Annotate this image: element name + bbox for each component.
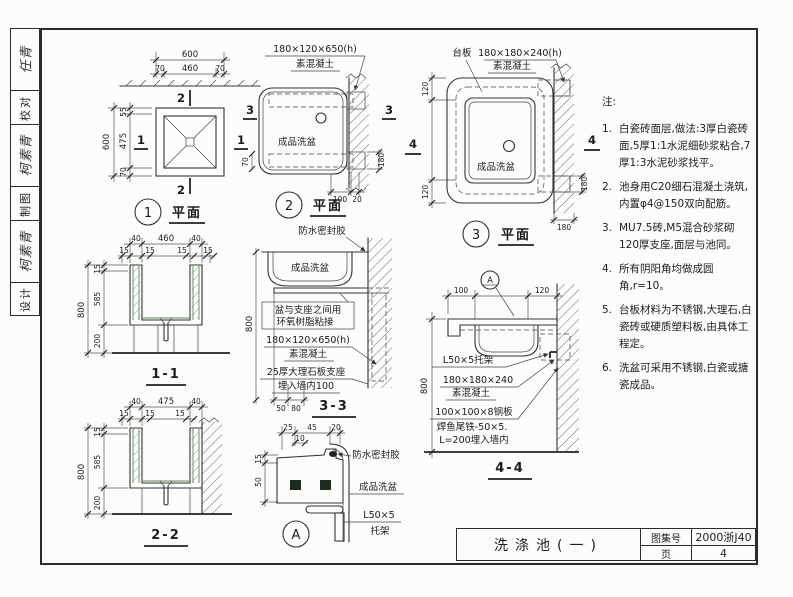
- s22-title: 2-2: [144, 528, 188, 546]
- svg-text:焊鱼尾铁-50×5.: 焊鱼尾铁-50×5.: [437, 421, 508, 433]
- svg-text:2: 2: [285, 199, 293, 214]
- s44-counter-basin: [448, 319, 570, 360]
- s44-wall: [557, 284, 579, 452]
- title-block-right: 图集号 2000浙J40 页 4: [641, 529, 755, 560]
- drawing-sheet: 任青 校对 柯素青 制图 柯素青 设计 600 70 460 70: [0, 0, 793, 597]
- note-item: 5. 台板材料为不锈钢,大理石,白瓷砖或硬质塑料板,由具体工程定。: [602, 302, 754, 353]
- plan3-labels: 台板 180×180×240(h) 素混凝土: [452, 47, 564, 92]
- plan2-section-markers: 3 3: [243, 103, 396, 119]
- svg-text:3: 3: [385, 103, 393, 117]
- s33-concrete-label: 180×120×650(h) 素混凝土: [264, 335, 376, 364]
- s22-wall: [199, 418, 222, 514]
- svg-text:600: 600: [102, 134, 112, 150]
- svg-text:2-2: 2-2: [151, 528, 181, 543]
- note-item: 4. 所有阴阳角均做成圆角,r=10。: [602, 261, 754, 295]
- svg-text:托架: 托架: [370, 525, 390, 537]
- svg-text:素混凝土: 素混凝土: [289, 348, 328, 360]
- svg-text:475: 475: [158, 397, 174, 407]
- svg-text:55: 55: [119, 107, 128, 117]
- svg-text:平面: 平面: [313, 199, 343, 214]
- svg-text:成品洗盆: 成品洗盆: [359, 481, 398, 493]
- s11-pool-section: [112, 265, 230, 353]
- svg-text:3-3: 3-3: [319, 399, 349, 414]
- s33-wall: [368, 238, 392, 388]
- svg-text:460: 460: [158, 234, 174, 244]
- svg-text:800: 800: [420, 378, 430, 394]
- svg-text:600: 600: [182, 50, 198, 60]
- svg-text:素混凝土: 素混凝土: [493, 60, 532, 72]
- svg-text:585: 585: [93, 455, 102, 470]
- svg-text:200: 200: [93, 496, 102, 511]
- page-row: 页 4: [641, 546, 755, 561]
- svg-text:70: 70: [155, 64, 165, 73]
- da-bracket: [306, 506, 344, 541]
- da-dims-left: 15 50: [254, 450, 278, 507]
- s33-marble-label: 25厚大理石板支座 埋入墙内100: [260, 366, 368, 393]
- svg-text:A: A: [292, 528, 301, 543]
- notes-panel: 注: 1. 白瓷砖面层,做法:3厚白瓷砖面,5厚1:1水泥细砂浆粘合,7厚1:3…: [602, 94, 754, 401]
- da-title: A: [283, 521, 309, 547]
- svg-text:50: 50: [276, 404, 286, 413]
- note-item: 3. MU7.5砖,M5混合砂浆砌120厚支座,面层与池同。: [602, 220, 754, 254]
- sidebar-signature-3: 柯素青: [10, 220, 40, 282]
- svg-text:70: 70: [119, 167, 128, 177]
- svg-text:L50×5: L50×5: [363, 510, 394, 521]
- atlas-label: 图集号: [641, 529, 692, 545]
- sidebar-signature-2: 柯素青: [10, 124, 40, 186]
- svg-text:1: 1: [144, 206, 152, 221]
- svg-text:70: 70: [215, 64, 225, 73]
- note-item: 2. 池身用C20细石混凝土浇筑,内置φ4@150双向配筋。: [602, 179, 754, 213]
- page-label: 页: [641, 546, 692, 561]
- svg-text:15: 15: [203, 246, 213, 255]
- svg-text:800: 800: [245, 316, 255, 332]
- svg-text:1-1: 1-1: [151, 367, 181, 382]
- detail-a-drawing: 25 45 20 10 15 50 防水密封胶: [236, 414, 426, 564]
- s33-epoxy-label: 盆与支座之间用 环氧树脂粘接: [262, 293, 354, 329]
- svg-text:4: 4: [588, 133, 596, 147]
- svg-text:40: 40: [131, 397, 141, 406]
- s44-detail-bubble: A: [481, 271, 514, 316]
- svg-text:120: 120: [421, 185, 430, 200]
- plan3-wall: [551, 64, 574, 213]
- svg-text:成品洗盆: 成品洗盆: [278, 136, 317, 148]
- section-4-4-drawing: A 100 120 L50×5托架 180×180×240: [416, 264, 601, 482]
- svg-text:800: 800: [77, 464, 87, 480]
- svg-text:素混凝土: 素混凝土: [452, 387, 491, 399]
- svg-text:2: 2: [177, 183, 185, 197]
- svg-text:100: 100: [454, 286, 469, 295]
- svg-text:15: 15: [93, 264, 102, 274]
- plan1-title: 1 平面: [135, 199, 205, 225]
- svg-text:15: 15: [93, 427, 102, 437]
- svg-text:200: 200: [93, 334, 102, 349]
- sidebar-label-proofread: 校对: [10, 90, 40, 124]
- svg-text:50: 50: [254, 477, 263, 487]
- svg-text:25: 25: [283, 423, 293, 432]
- da-counter-body: [277, 449, 343, 503]
- s11-dims-left: 800 15 585 200: [77, 260, 128, 358]
- svg-text:4-4: 4-4: [495, 461, 525, 476]
- sidebar-label-draft: 制图: [10, 186, 40, 220]
- svg-text:2: 2: [177, 91, 185, 105]
- svg-text:4: 4: [409, 137, 417, 151]
- svg-text:100×100×8钢板: 100×100×8钢板: [435, 406, 513, 418]
- svg-text:盆与支座之间用: 盆与支座之间用: [275, 304, 342, 316]
- s44-labels: L50×5托架 180×180×240 素混凝土 100×100×8钢板 焊鱼尾…: [430, 354, 558, 446]
- s33-basin: 成品洗盆: [262, 252, 368, 286]
- svg-text:180: 180: [557, 223, 572, 232]
- s33-sealant-label: 防水密封胶: [298, 225, 365, 251]
- svg-text:20: 20: [331, 423, 341, 432]
- svg-text:埋入墙内100: 埋入墙内100: [278, 380, 334, 392]
- s11-dims-top: 40 460 40 15 15 15 15: [118, 234, 217, 263]
- svg-text:15: 15: [175, 409, 185, 418]
- svg-text:15: 15: [119, 246, 129, 255]
- svg-text:15: 15: [145, 409, 155, 418]
- svg-text:475: 475: [119, 133, 129, 149]
- title-block: 洗涤池(一) 图集号 2000浙J40 页 4: [456, 528, 756, 561]
- svg-text:25厚大理石板支座: 25厚大理石板支座: [267, 366, 346, 378]
- s22-dims-left: 800 15 585 200: [77, 423, 128, 519]
- svg-text:120: 120: [535, 286, 550, 295]
- section-3-3-drawing: 防水密封胶 成品洗盆 盆与支座之间用 环氧树脂粘接 180×120×650(h)…: [248, 224, 416, 420]
- s44-dims-top: 100 120: [442, 286, 563, 319]
- plan3-title: 3 平面: [463, 221, 534, 247]
- plan1-dims-top: 600 70 460 70: [150, 50, 230, 78]
- svg-text:平面: 平面: [501, 228, 531, 243]
- svg-text:70: 70: [241, 157, 250, 167]
- drawing-title: 洗涤池(一): [457, 529, 641, 560]
- svg-text:L50×5托架: L50×5托架: [443, 354, 494, 366]
- svg-text:3: 3: [246, 103, 254, 117]
- svg-text:180×120×650(h): 180×120×650(h): [266, 335, 350, 346]
- plan1-section-markers: 2 2 1 1: [134, 90, 248, 197]
- svg-text:A: A: [487, 276, 493, 286]
- svg-text:防水密封胶: 防水密封胶: [352, 449, 400, 461]
- svg-text:防水密封胶: 防水密封胶: [298, 225, 346, 237]
- svg-text:15: 15: [177, 246, 187, 255]
- sidebar-signature-1: 任青: [10, 28, 40, 90]
- s11-title: 1-1: [146, 367, 186, 385]
- note-item: 6. 洗盆可采用不锈钢,白瓷或搪瓷成品。: [602, 360, 754, 394]
- svg-text:180: 180: [580, 177, 589, 192]
- section-2-2-drawing: 40 475 40 15 15 15: [82, 396, 257, 556]
- plan1-pool: [156, 108, 224, 176]
- plan2-basin: 成品洗盆: [259, 88, 347, 174]
- da-labels: 防水密封胶 成品洗盆 L50×5 托架: [338, 449, 404, 537]
- svg-text:40: 40: [191, 234, 201, 243]
- plan1-wall-line: [120, 80, 260, 86]
- svg-text:成品洗盆: 成品洗盆: [291, 262, 330, 274]
- svg-text:环氧树脂粘接: 环氧树脂粘接: [276, 316, 334, 328]
- svg-text:平面: 平面: [172, 206, 202, 221]
- svg-text:15: 15: [254, 454, 263, 464]
- page-number: 4: [692, 546, 755, 561]
- atlas-number: 2000浙J40: [692, 529, 755, 545]
- svg-text:80: 80: [291, 404, 301, 413]
- note-item: 1. 白瓷砖面层,做法:3厚白瓷砖面,5厚1:1水泥细砂浆粘合,7厚1:3水泥砂…: [602, 121, 754, 172]
- svg-text:1: 1: [137, 133, 145, 147]
- svg-text:180: 180: [377, 153, 386, 168]
- plan3-counter-basin: 成品洗盆: [447, 78, 553, 203]
- s44-title: 4-4: [488, 461, 532, 479]
- svg-text:10: 10: [295, 434, 305, 443]
- svg-text:3: 3: [472, 228, 480, 243]
- section-1-1-drawing: 40 460 40 15 15 15 15 800: [82, 230, 257, 390]
- svg-text:45: 45: [307, 423, 317, 432]
- svg-text:15: 15: [145, 246, 155, 255]
- plan-2-drawing: 180×120×650(h) 素混凝土 成品洗盆 70: [243, 42, 398, 227]
- sidebar-label-design: 设计: [10, 282, 40, 316]
- svg-text:40: 40: [191, 397, 201, 406]
- signature-sidebar: 任青 校对 柯素青 制图 柯素青 设计: [10, 28, 40, 316]
- notes-heading: 注:: [602, 94, 754, 111]
- svg-text:180×180×240(h): 180×180×240(h): [478, 48, 562, 59]
- svg-text:180×180×240: 180×180×240: [443, 375, 513, 386]
- svg-text:40: 40: [131, 234, 141, 243]
- svg-text:460: 460: [182, 64, 198, 74]
- svg-text:120: 120: [421, 82, 430, 97]
- da-dims-top: 25 45 20 10: [277, 423, 345, 450]
- svg-text:180×120×650(h): 180×120×650(h): [273, 44, 357, 55]
- svg-text:L=200埋入墙内: L=200埋入墙内: [439, 434, 508, 446]
- svg-text:585: 585: [93, 292, 102, 307]
- svg-text:台板: 台板: [452, 47, 472, 59]
- s22-dims-top: 40 475 40 15 15 15: [118, 397, 208, 426]
- svg-text:800: 800: [77, 302, 87, 318]
- svg-text:素混凝土: 素混凝土: [296, 58, 335, 70]
- svg-text:成品洗盆: 成品洗盆: [477, 161, 516, 173]
- plan-3-drawing: 台板 180×180×240(h) 素混凝土 成品洗盆: [404, 36, 600, 251]
- svg-text:15: 15: [119, 409, 129, 418]
- svg-text:20: 20: [352, 195, 362, 204]
- atlas-row: 图集号 2000浙J40: [641, 529, 755, 546]
